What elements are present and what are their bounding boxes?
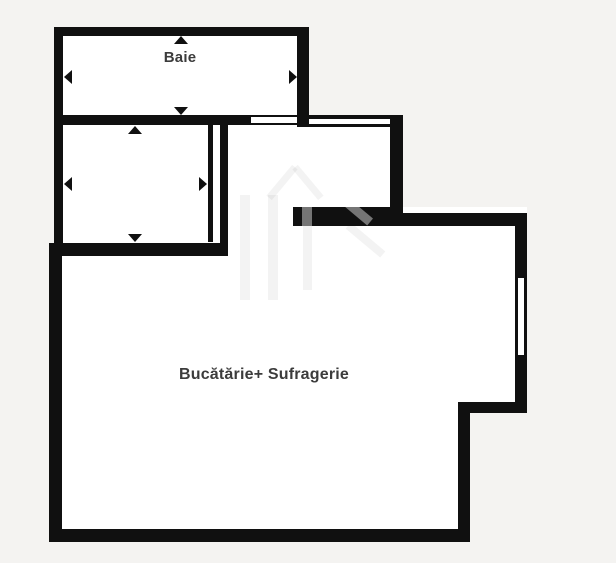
measure-arrow-right-icon xyxy=(199,177,207,191)
wall-baie-top xyxy=(54,27,309,36)
watermark-bar xyxy=(303,226,312,290)
measure-arrow-down-icon xyxy=(174,107,188,115)
wall-camera-bottom xyxy=(49,243,228,256)
watermark-bar xyxy=(268,195,278,300)
measure-arrow-up-icon xyxy=(128,126,142,134)
wall-living-top-thick xyxy=(293,207,403,226)
wall-living-top-thin xyxy=(403,213,527,226)
measure-arrow-up-icon xyxy=(174,36,188,44)
floor-plan: Baie Bucătărie+ Sufragerie xyxy=(0,0,616,563)
wall-bottom xyxy=(49,529,470,542)
wall-middle-left xyxy=(220,115,228,250)
watermark-bar xyxy=(240,195,250,300)
wall-right-lower xyxy=(458,402,470,542)
window-middle-top-outer-line xyxy=(309,115,390,119)
wall-left-upper xyxy=(54,27,63,243)
wall-left-lower xyxy=(49,243,62,542)
door-baie-slot xyxy=(251,117,297,123)
room-label-baie: Baie xyxy=(130,49,230,66)
room-label-living: Bucătărie+ Sufragerie xyxy=(139,366,389,384)
wall-baie-right xyxy=(297,27,309,127)
watermark-stripe-vertical xyxy=(302,207,312,226)
measure-arrow-right-icon xyxy=(289,70,297,84)
window-right-slot xyxy=(518,278,524,355)
measure-arrow-left-icon xyxy=(64,177,72,191)
measure-arrow-left-icon xyxy=(64,70,72,84)
wall-middle-right xyxy=(390,115,403,210)
measure-arrow-down-icon xyxy=(128,234,142,242)
watermark-stripe-diagonal xyxy=(335,207,373,225)
window-middle-top-inner-line xyxy=(309,124,390,127)
wall-camera-right-thin xyxy=(208,125,213,242)
